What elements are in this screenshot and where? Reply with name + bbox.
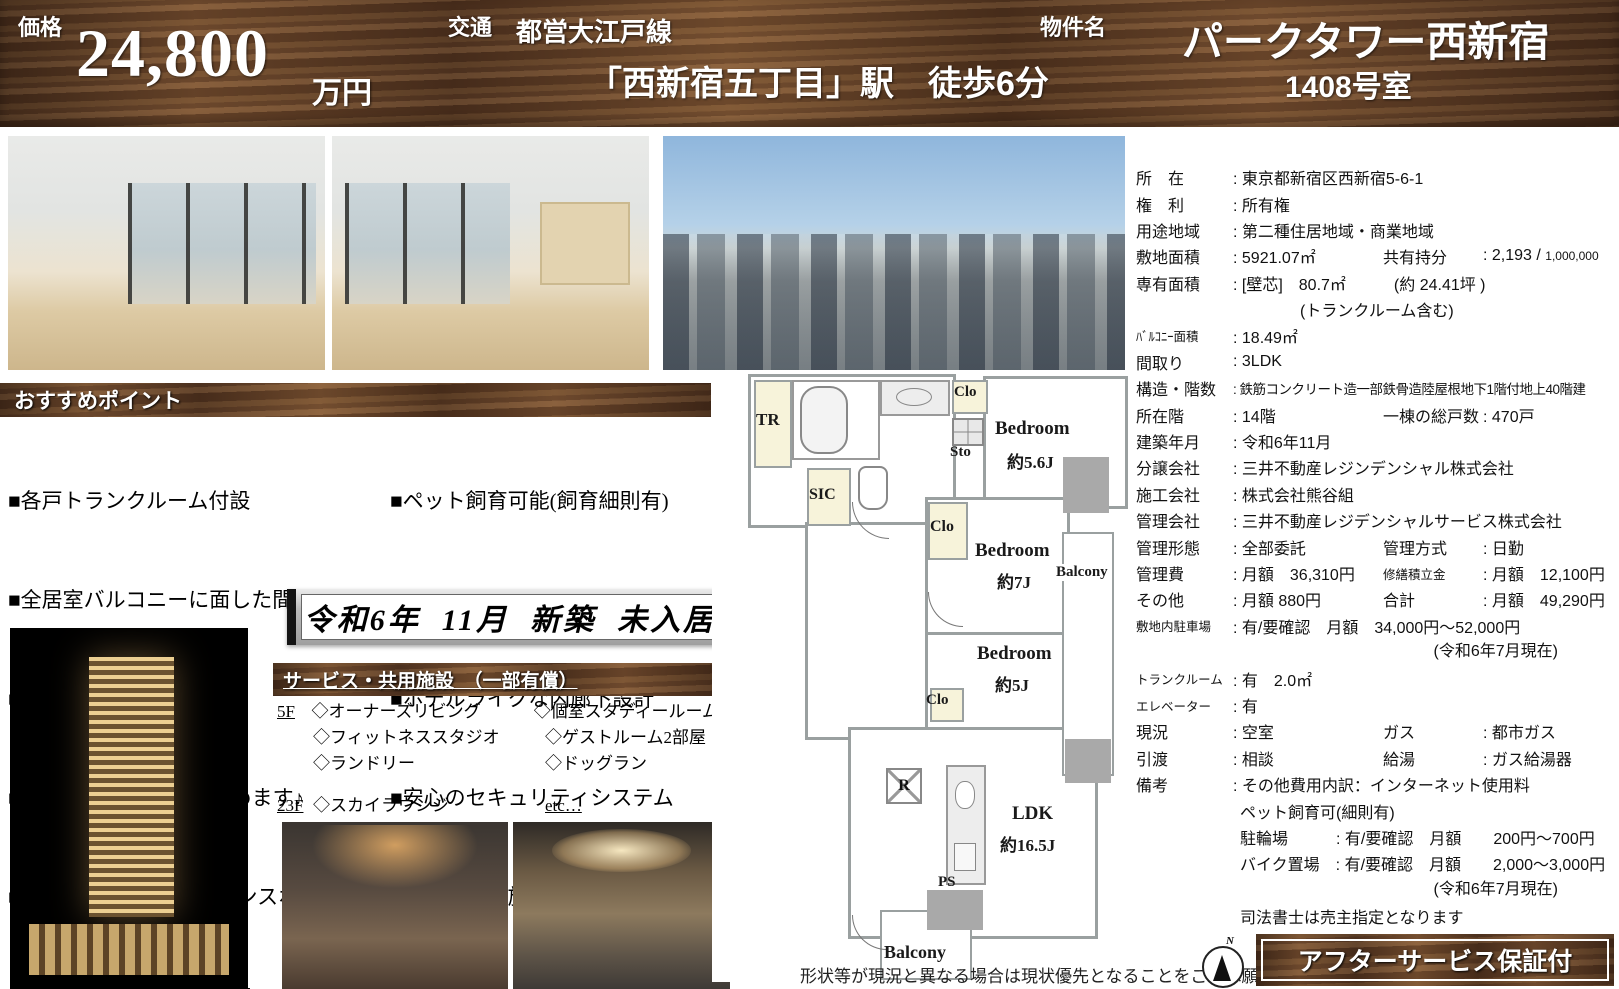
info-label: 所在階 (1136, 403, 1233, 427)
info-value: : 相談 (1233, 746, 1383, 770)
facility-row: ◇フィットネススタジオ ◇ゲストルーム2部屋 (277, 725, 719, 751)
info-label: 権 利 (1136, 192, 1233, 216)
info-value: : 5921.07㎡ (1233, 244, 1383, 268)
facility-row: ◇ランドリー ◇ドッグラン (277, 751, 719, 777)
info-row: 備考: その他費用内訳：インターネット使用料 (1136, 771, 1614, 797)
info-row: ペット飼育可(細則有) (1136, 797, 1614, 823)
info-value: : その他費用内訳：インターネット使用料 (1233, 772, 1530, 796)
info-value-2: : 2,193 / (1483, 247, 1545, 265)
info-value-2: : 都市ガス (1483, 719, 1556, 743)
info-row: 現況: 空室ガス: 都市ガス (1136, 718, 1614, 744)
info-value: : 所有権 (1233, 192, 1290, 216)
info-row: その他: 月額 880円合計: 月額 49,290円 (1136, 586, 1614, 612)
compass-icon: N (1200, 936, 1246, 988)
facility-row: 5F ◇オーナーズリビング ◇個室スタディールーム (277, 699, 719, 725)
info-label: トランクルーム (1136, 669, 1233, 688)
trunk-room-label: TR (756, 410, 780, 430)
price-label: 価格 (18, 10, 62, 42)
info-label-2: 合計 (1383, 587, 1483, 611)
info-value-2: : 月額 12,100円 (1483, 561, 1605, 585)
info-row: バイク置場 : 有/要確認 月額 2,000～3,000円 (1136, 850, 1614, 876)
bedroom3-size: 約5J (995, 671, 1029, 696)
pillar (927, 890, 983, 930)
info-value: : 有 2.0㎡ (1233, 667, 1312, 691)
info-value: : 空室 (1233, 719, 1383, 743)
pillar (1065, 739, 1111, 783)
info-row: 用途地域: 第二種住居地域・商業地域 (1136, 217, 1614, 243)
info-label: 敷地面積 (1136, 244, 1233, 268)
photo-city-view (663, 136, 1125, 370)
info-value: : 第二種住居地域・商業地域 (1233, 218, 1434, 242)
info-value: : 東京都新宿区西新宿5-6-1 (1233, 165, 1423, 189)
info-label: 用途地域 (1136, 218, 1233, 242)
info-row: 建築年月: 令和6年11月 (1136, 428, 1614, 454)
info-label: エレベーター (1136, 696, 1233, 715)
point-item: ■ペット飼育可能(飼育細則有) (390, 485, 712, 518)
info-value: : 18.49㎡ (1233, 324, 1298, 348)
storage-box (952, 418, 984, 446)
info-value: : 月額 880円 (1233, 587, 1383, 611)
info-label: 専有面積 (1136, 271, 1233, 295)
facility-floor: 5F (277, 699, 311, 725)
bedroom3-label: Bedroom (977, 643, 1052, 665)
storage-label: Sto (950, 444, 971, 461)
info-value: : 全部委託 (1233, 535, 1383, 559)
info-value: : 株式会社熊谷組 (1233, 482, 1354, 506)
info-row: 管理形態: 全部委託管理方式: 日勤 (1136, 533, 1614, 559)
city-skyline (663, 234, 1125, 370)
info-label: 間取り (1136, 350, 1233, 374)
info-value: : 3LDK (1233, 353, 1282, 371)
info-label: 現況 (1136, 719, 1233, 743)
info-label: 所 在 (1136, 165, 1233, 189)
info-label: ﾊﾞﾙｺﾆｰ面積 (1136, 326, 1233, 345)
transport-label: 交通 (448, 10, 492, 42)
info-row: 敷地面積: 5921.07㎡共有持分: 2,193 / 1,000,000 (1136, 243, 1614, 269)
info-note: (令和6年7月現在) (1434, 643, 1558, 660)
facility-item: ◇個室スタディールーム (534, 699, 719, 725)
info-value: : 三井不動産レジンデンシャル株式会社 (1233, 455, 1514, 479)
facility-item: ◇ランドリー (313, 751, 545, 777)
flyer-page: 価格 24,800 万円 交通 都営大江戸線 「西新宿五丁目」駅 徒歩6分 物件… (0, 0, 1619, 989)
photo-living-room-2 (332, 136, 649, 370)
info-value: (トランクルーム含む) (1300, 297, 1454, 321)
after-service-badge-text: アフターサービス保証付 (1261, 939, 1609, 981)
info-row: (トランクルーム含む) (1136, 296, 1614, 322)
transport-line: 都営大江戸線 (516, 12, 672, 49)
info-value: : 月額 36,310円 (1233, 561, 1383, 585)
photo-living-room-1 (8, 136, 325, 370)
hallway (805, 522, 931, 740)
facilities-section-bar: サービス・共用施設 （一部有償） (273, 663, 723, 696)
info-label: 構造・階数 (1136, 376, 1233, 400)
compass-north-label: N (1226, 935, 1234, 947)
info-row: 引渡: 相談給湯: ガス給湯器 (1136, 745, 1614, 771)
info-label: 備考 (1136, 772, 1233, 796)
info-label: 管理形態 (1136, 535, 1233, 559)
facility-item: ◇ゲストルーム2部屋 (545, 725, 719, 751)
balcony-right-label: Balcony (1054, 564, 1110, 581)
info-label: 分譲会社 (1136, 455, 1233, 479)
ldk-label: LDK (1012, 803, 1053, 825)
info-label-2: 修繕積立金 (1383, 564, 1483, 583)
window-wall (345, 183, 510, 305)
info-row: 敷地内駐車場: 有/要確認 月額 34,000円～52,000円 (1136, 613, 1614, 639)
info-row: エレベーター: 有 (1136, 692, 1614, 718)
info-value: : 14階 (1233, 403, 1383, 427)
new-build-banner-text: 令和6年 11月 新築 未入居 (301, 594, 719, 640)
facility-item-etc: etc… (545, 793, 719, 819)
info-label-2: 共有持分 (1383, 244, 1483, 268)
info-label: 施工会社 (1136, 482, 1233, 506)
refrigerator-label: R (898, 777, 910, 795)
info-label: 引渡 (1136, 746, 1233, 770)
info-row: 司法書士は売主指定となります (1136, 903, 1614, 929)
info-row: 所在階: 14階一棟の総戸数: 470戸 (1136, 402, 1614, 428)
info-value: ペット飼育可(細則有) (1240, 799, 1395, 823)
sic-label: SIC (809, 486, 836, 504)
points-title: おすすめポイント (0, 385, 182, 415)
points-section-bar: おすすめポイント (0, 383, 711, 417)
kitchen-counter (540, 202, 630, 286)
info-row: 施工会社: 株式会社熊谷組 (1136, 481, 1614, 507)
balcony-bottom-label: Balcony (884, 942, 946, 963)
info-value: : 令和6年11月 (1233, 429, 1331, 453)
photo-lobby (282, 822, 508, 989)
facility-floor (277, 725, 313, 751)
info-value: バイク置場 : 有/要確認 月額 2,000～3,000円 (1240, 851, 1605, 875)
header-band: 価格 24,800 万円 交通 都営大江戸線 「西新宿五丁目」駅 徒歩6分 物件… (0, 0, 1619, 127)
washbasin (880, 380, 950, 416)
refrigerator-space: R (886, 768, 922, 804)
podium-render (29, 924, 229, 975)
info-label-2: 一棟の総戸数 (1383, 403, 1483, 427)
facilities-list: 5F ◇オーナーズリビング ◇個室スタディールーム ◇フィットネススタジオ ◇ゲ… (277, 699, 719, 819)
facility-item: ◇スカイラウンジ (313, 793, 545, 819)
info-row: 間取り: 3LDK (1136, 349, 1614, 375)
info-label-2: 給湯 (1383, 746, 1483, 770)
kitchen-unit (946, 765, 986, 885)
tower-render (89, 657, 175, 917)
info-label: 管理会社 (1136, 508, 1233, 532)
facilities-title: サービス・共用施設 （一部有償） (273, 666, 578, 693)
after-service-badge: アフターサービス保証付 (1256, 934, 1614, 986)
info-value: 駐輪場 : 有/要確認 月額 200円～700円 (1240, 825, 1595, 849)
info-value-2: : 470戸 (1483, 403, 1535, 427)
info-value: : [壁芯] 80.7㎡ (約 24.41坪 ) (1233, 271, 1486, 295)
info-row: 分譲会社: 三井不動産レジンデンシャル株式会社 (1136, 454, 1614, 480)
floor-plan: R TR Sto Clo SIC Clo Clo Bedroom 約5.6J B… (712, 370, 1127, 982)
info-row: 所 在: 東京都新宿区西新宿5-6-1 (1136, 164, 1614, 190)
info-value-2: : 日勤 (1483, 535, 1524, 559)
info-value: : 有 (1233, 693, 1258, 717)
info-row: (令和6年7月現在) (1136, 639, 1614, 665)
photo-building-night (10, 628, 248, 989)
bedroom1-size: 約5.6J (1007, 448, 1054, 473)
bedroom2-label: Bedroom (975, 540, 1050, 562)
facility-item: ◇ドッグラン (545, 751, 719, 777)
info-row: 権 利: 所有権 (1136, 190, 1614, 216)
closet-label: Clo (930, 518, 954, 536)
facility-floor (277, 751, 313, 777)
info-row: 管理会社: 三井不動産レジデンシャルサービス株式会社 (1136, 507, 1614, 533)
facility-item: ◇オーナーズリビング (311, 699, 533, 725)
info-label: 敷地内駐車場 (1136, 616, 1233, 635)
bathtub (800, 386, 848, 454)
closet-label: Clo (954, 384, 977, 401)
new-build-banner: 令和6年 11月 新築 未入居 (287, 589, 733, 645)
info-row: 駐輪場 : 有/要確認 月額 200円～700円 (1136, 824, 1614, 850)
info-label: その他 (1136, 587, 1233, 611)
floor-plan-disclaimer: 形状等が現況と異なる場合は現状優先となることをご了承願います。 (800, 962, 1325, 987)
photo-corridor (513, 822, 730, 989)
info-value: : 三井不動産レジデンシャルサービス株式会社 (1233, 508, 1562, 532)
bedroom2-size: 約7J (997, 568, 1031, 593)
ldk-size: 約16.5J (1000, 831, 1055, 856)
info-row: 構造・階数: 鉄筋コンクリート造一部鉄骨造陸屋根地下1階付地上40階建 (1136, 375, 1614, 401)
info-value-2: : 月額 49,290円 (1483, 587, 1605, 611)
info-label: 管理費 (1136, 561, 1233, 585)
compass-arrow-icon (1213, 955, 1231, 981)
facility-item: ◇フィットネススタジオ (313, 725, 545, 751)
info-value-small: 1,000,000 (1545, 249, 1598, 263)
info-label: 建築年月 (1136, 429, 1233, 453)
price-unit: 万円 (312, 68, 372, 112)
info-row: トランクルーム: 有 2.0㎡ (1136, 665, 1614, 691)
facility-row: 23F ◇スカイラウンジ etc… (277, 793, 719, 819)
info-row: ﾊﾞﾙｺﾆｰ面積: 18.49㎡ (1136, 322, 1614, 348)
bedroom1-label: Bedroom (995, 418, 1070, 440)
info-value: 司法書士は売主指定となります (1240, 904, 1464, 928)
info-label-2: 管理方式 (1383, 535, 1483, 559)
closet-label: Clo (926, 692, 949, 709)
price-value: 24,800 (76, 14, 269, 93)
info-label-2: ガス (1383, 719, 1483, 743)
info-row: 専有面積: [壁芯] 80.7㎡ (約 24.41坪 ) (1136, 270, 1614, 296)
station-access: 「西新宿五丁目」駅 徒歩6分 (588, 56, 1049, 105)
window-wall (128, 183, 315, 305)
property-label: 物件名 (1040, 10, 1106, 42)
info-value-2: : ガス給湯器 (1483, 746, 1572, 770)
info-value: : 鉄筋コンクリート造一部鉄骨造陸屋根地下1階付地上40階建 (1233, 378, 1586, 398)
property-info-panel: 所 在: 東京都新宿区西新宿5-6-1 権 利: 所有権 用途地域: 第二種住居… (1136, 164, 1614, 929)
info-row: 管理費: 月額 36,310円修繕積立金: 月額 12,100円 (1136, 560, 1614, 586)
info-note: (令和6年7月現在) (1434, 881, 1558, 898)
facility-floor: 23F (277, 793, 313, 819)
info-row: (令和6年7月現在) (1136, 877, 1614, 903)
room-number: 1408号室 (1285, 62, 1412, 106)
door-arc (852, 915, 887, 950)
info-value: : 有/要確認 月額 34,000円～52,000円 (1233, 614, 1520, 638)
point-item: ■各戸トランクルーム付設 (8, 485, 386, 518)
ps-label: PS (938, 874, 956, 891)
pillar (1063, 457, 1109, 513)
property-name: パークタワー西新宿 (1182, 8, 1549, 68)
